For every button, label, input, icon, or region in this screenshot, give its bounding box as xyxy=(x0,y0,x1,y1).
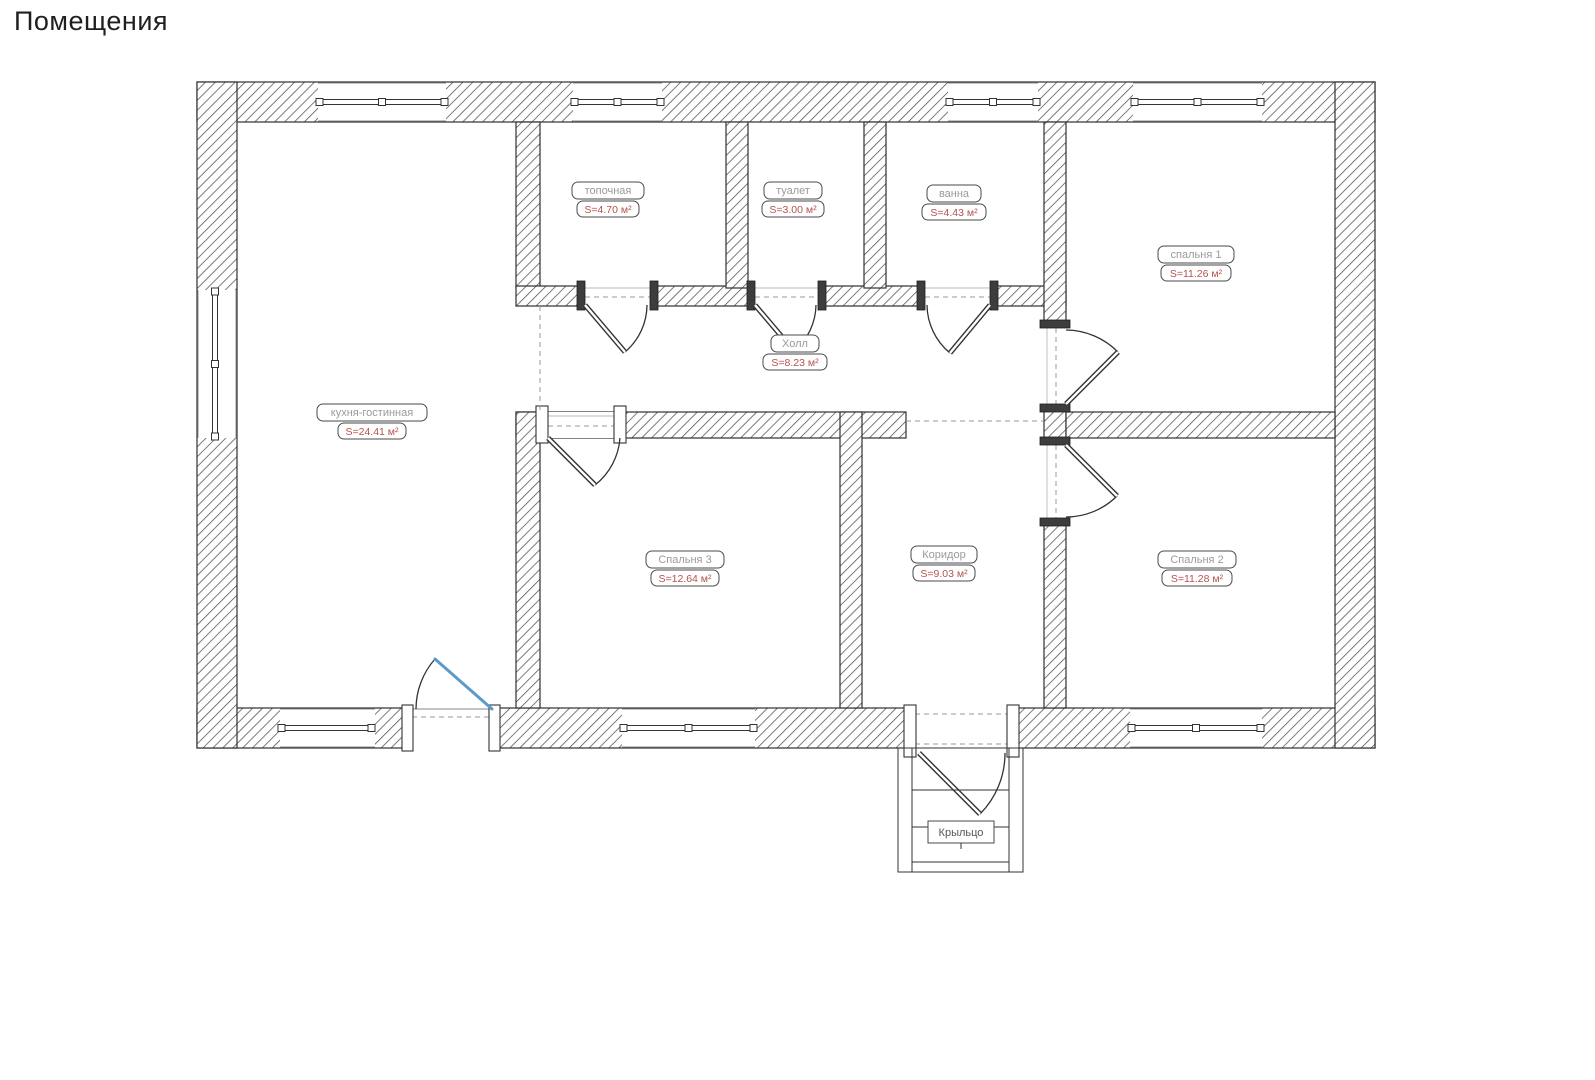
window-bottom-kitchen xyxy=(278,709,375,747)
room-label-corridor[interactable]: Коридор S=9.03 м² xyxy=(911,546,977,581)
door-porch xyxy=(904,705,1019,814)
wall-bedroom1-bedroom2 xyxy=(1066,412,1335,438)
floor-plan: топочная S=4.70 м² туалет S=3.00 м² ванн… xyxy=(0,0,1595,1080)
wall-bedroom3-corridor xyxy=(840,412,862,708)
room-area: S=11.28 м² xyxy=(1171,573,1224,585)
window-bottom-bedroom2 xyxy=(1128,709,1264,747)
window-top-kitchen xyxy=(316,83,448,121)
room-area: S=12.64 м² xyxy=(658,573,712,585)
room-area: S=11.26 м² xyxy=(1170,268,1223,280)
door-bedroom3 xyxy=(536,406,626,485)
room-area: S=9.03 м² xyxy=(920,568,968,580)
room-name: Спальня 2 xyxy=(1170,554,1223,566)
room-name: Крыльцо xyxy=(939,827,984,839)
room-area: S=4.43 м² xyxy=(930,207,978,219)
room-name: кухня-гостинная xyxy=(331,407,413,419)
room-label-porch[interactable]: Крыльцо xyxy=(928,821,994,849)
room-name: Коридор xyxy=(922,549,965,561)
wall-bedroom3-left xyxy=(516,412,540,708)
room-area: S=24.41 м² xyxy=(345,426,399,438)
wall-bedrooms-left xyxy=(1044,122,1066,708)
room-label-toilet[interactable]: туалет S=3.00 м² xyxy=(762,182,824,217)
door-bedroom1 xyxy=(1040,320,1118,412)
entrance-door-leaf xyxy=(435,659,492,709)
room-name: ванна xyxy=(939,188,970,200)
window-top-boiler xyxy=(571,83,664,121)
door-boiler xyxy=(577,281,658,352)
room-label-bedroom2[interactable]: Спальня 2 S=11.28 м² xyxy=(1158,551,1236,586)
wall-kitchen-boiler xyxy=(516,122,540,288)
window-bottom-bedroom3 xyxy=(620,709,757,747)
wall-right xyxy=(1335,82,1375,748)
room-name: спальня 1 xyxy=(1171,249,1222,261)
door-bedroom2 xyxy=(1040,437,1117,526)
room-name: топочная xyxy=(585,185,632,197)
room-area: S=3.00 м² xyxy=(769,204,817,216)
room-label-hall[interactable]: Холл S=8.23 м² xyxy=(763,335,827,370)
door-bath xyxy=(917,281,998,353)
room-label-bedroom1[interactable]: спальня 1 S=11.26 м² xyxy=(1158,246,1234,281)
window-left-kitchen xyxy=(198,288,236,440)
room-label-bedroom3[interactable]: Спальня 3 S=12.64 м² xyxy=(646,551,724,586)
wall-boiler-toilet xyxy=(726,122,748,288)
room-area: S=4.70 м² xyxy=(584,204,632,216)
window-top-bedroom1 xyxy=(1131,83,1264,121)
room-label-boiler[interactable]: топочная S=4.70 м² xyxy=(572,182,644,217)
wall-toilet-bath xyxy=(864,122,886,288)
room-label-bath[interactable]: ванна S=4.43 м² xyxy=(922,185,986,220)
door-entrance xyxy=(402,659,500,751)
room-name: туалет xyxy=(776,185,810,197)
window-top-bath xyxy=(946,83,1040,121)
room-name: Спальня 3 xyxy=(658,554,711,566)
room-name: Холл xyxy=(782,338,808,350)
room-label-kitchen[interactable]: кухня-гостинная S=24.41 м² xyxy=(317,404,427,439)
room-area: S=8.23 м² xyxy=(771,357,819,369)
